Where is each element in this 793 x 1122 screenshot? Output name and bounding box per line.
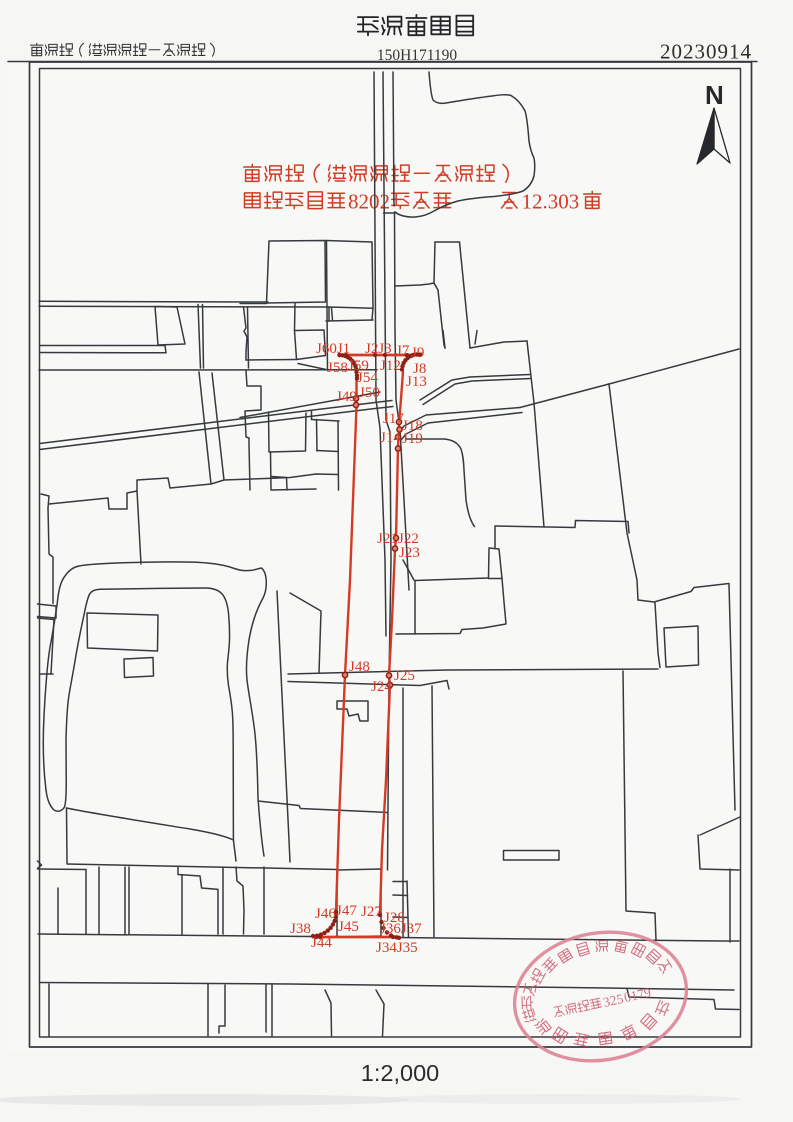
svg-text:1:2,000: 1:2,000 — [361, 1060, 439, 1086]
svg-text:J38: J38 — [290, 921, 311, 937]
svg-text:J21: J21 — [377, 531, 398, 547]
svg-text:J9: J9 — [411, 345, 424, 361]
svg-text:J23: J23 — [399, 545, 420, 561]
svg-text:J19: J19 — [402, 431, 423, 447]
svg-text:N: N — [705, 80, 724, 110]
svg-text:J14: J14 — [380, 430, 401, 446]
svg-text:J34J35: J34J35 — [376, 940, 418, 956]
svg-text:J60J1: J60J1 — [316, 341, 350, 357]
svg-text:J47: J47 — [336, 903, 357, 919]
svg-text:J48: J48 — [349, 659, 370, 675]
svg-text:J49: J49 — [336, 389, 357, 405]
svg-text:J50: J50 — [359, 385, 380, 401]
svg-text:J36J37: J36J37 — [380, 921, 422, 937]
svg-text:J25: J25 — [394, 668, 415, 684]
svg-text:J58: J58 — [327, 360, 348, 376]
svg-text:J7: J7 — [396, 343, 410, 359]
svg-text:12.303: 12.303 — [522, 190, 580, 214]
svg-text:J2J3: J2J3 — [365, 341, 392, 357]
svg-text:J27: J27 — [361, 904, 382, 920]
svg-text:J12: J12 — [380, 358, 401, 374]
svg-text:J46: J46 — [315, 906, 336, 922]
svg-text:J45: J45 — [338, 919, 359, 935]
svg-text:J13: J13 — [406, 374, 427, 390]
svg-text:J54: J54 — [357, 370, 378, 386]
svg-text:J44: J44 — [311, 935, 332, 951]
svg-text:20230914: 20230914 — [660, 40, 752, 64]
svg-text:J24: J24 — [371, 679, 392, 695]
